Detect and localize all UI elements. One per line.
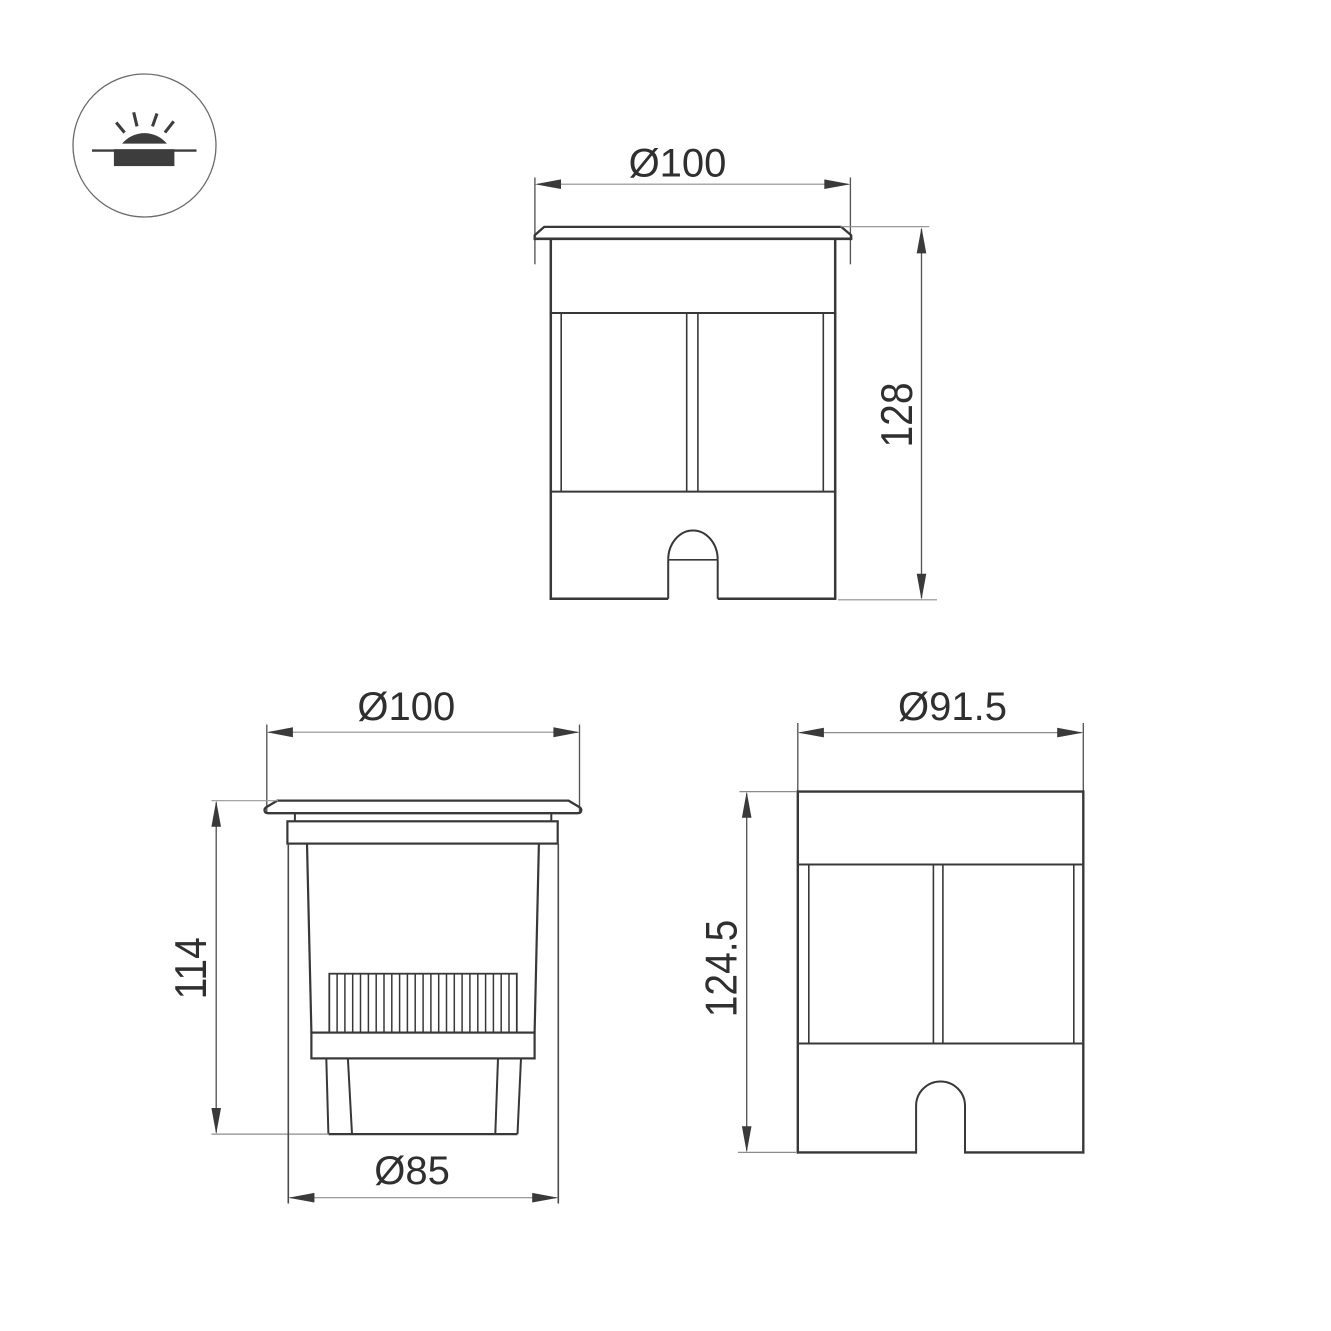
svg-text:114: 114 <box>166 937 216 999</box>
svg-text:Ø100: Ø100 <box>357 685 455 729</box>
svg-text:128: 128 <box>872 382 922 447</box>
svg-text:Ø100: Ø100 <box>629 142 727 186</box>
svg-text:Ø85: Ø85 <box>374 1149 450 1193</box>
svg-text:124.5: 124.5 <box>696 920 746 1018</box>
svg-text:Ø91.5: Ø91.5 <box>898 685 1007 729</box>
